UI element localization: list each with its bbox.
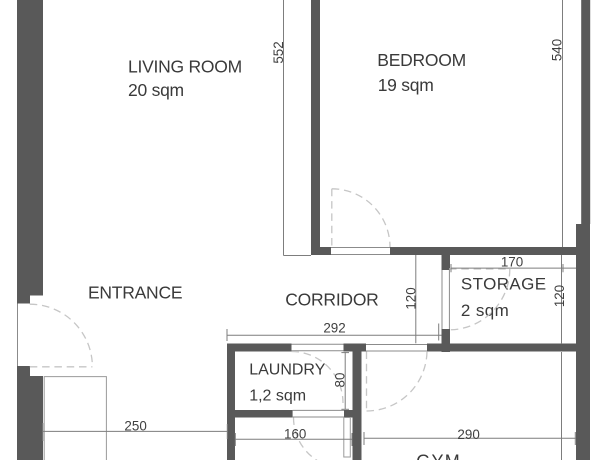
svg-text:120: 120 xyxy=(552,285,567,307)
svg-text:2 sqm: 2 sqm xyxy=(461,301,509,320)
svg-text:160: 160 xyxy=(284,427,306,442)
svg-text:1,2 sqm: 1,2 sqm xyxy=(249,387,306,404)
svg-text:GYM: GYM xyxy=(416,451,461,460)
svg-text:540: 540 xyxy=(550,39,565,61)
svg-text:LIVING ROOM: LIVING ROOM xyxy=(128,56,242,76)
svg-text:290: 290 xyxy=(457,427,479,442)
svg-text:CORRIDOR: CORRIDOR xyxy=(285,290,378,310)
svg-text:LAUNDRY: LAUNDRY xyxy=(249,361,326,378)
svg-text:80: 80 xyxy=(332,373,347,388)
svg-text:STORAGE: STORAGE xyxy=(461,275,547,294)
svg-text:BEDROOM: BEDROOM xyxy=(377,50,466,70)
svg-text:250: 250 xyxy=(124,418,146,433)
svg-text:20 sqm: 20 sqm xyxy=(128,80,184,100)
svg-text:120: 120 xyxy=(404,287,419,309)
svg-text:19 sqm: 19 sqm xyxy=(378,75,434,95)
svg-text:170: 170 xyxy=(501,255,523,270)
svg-text:ENTRANCE: ENTRANCE xyxy=(88,283,182,303)
svg-text:552: 552 xyxy=(271,41,286,63)
svg-text:292: 292 xyxy=(323,320,345,335)
